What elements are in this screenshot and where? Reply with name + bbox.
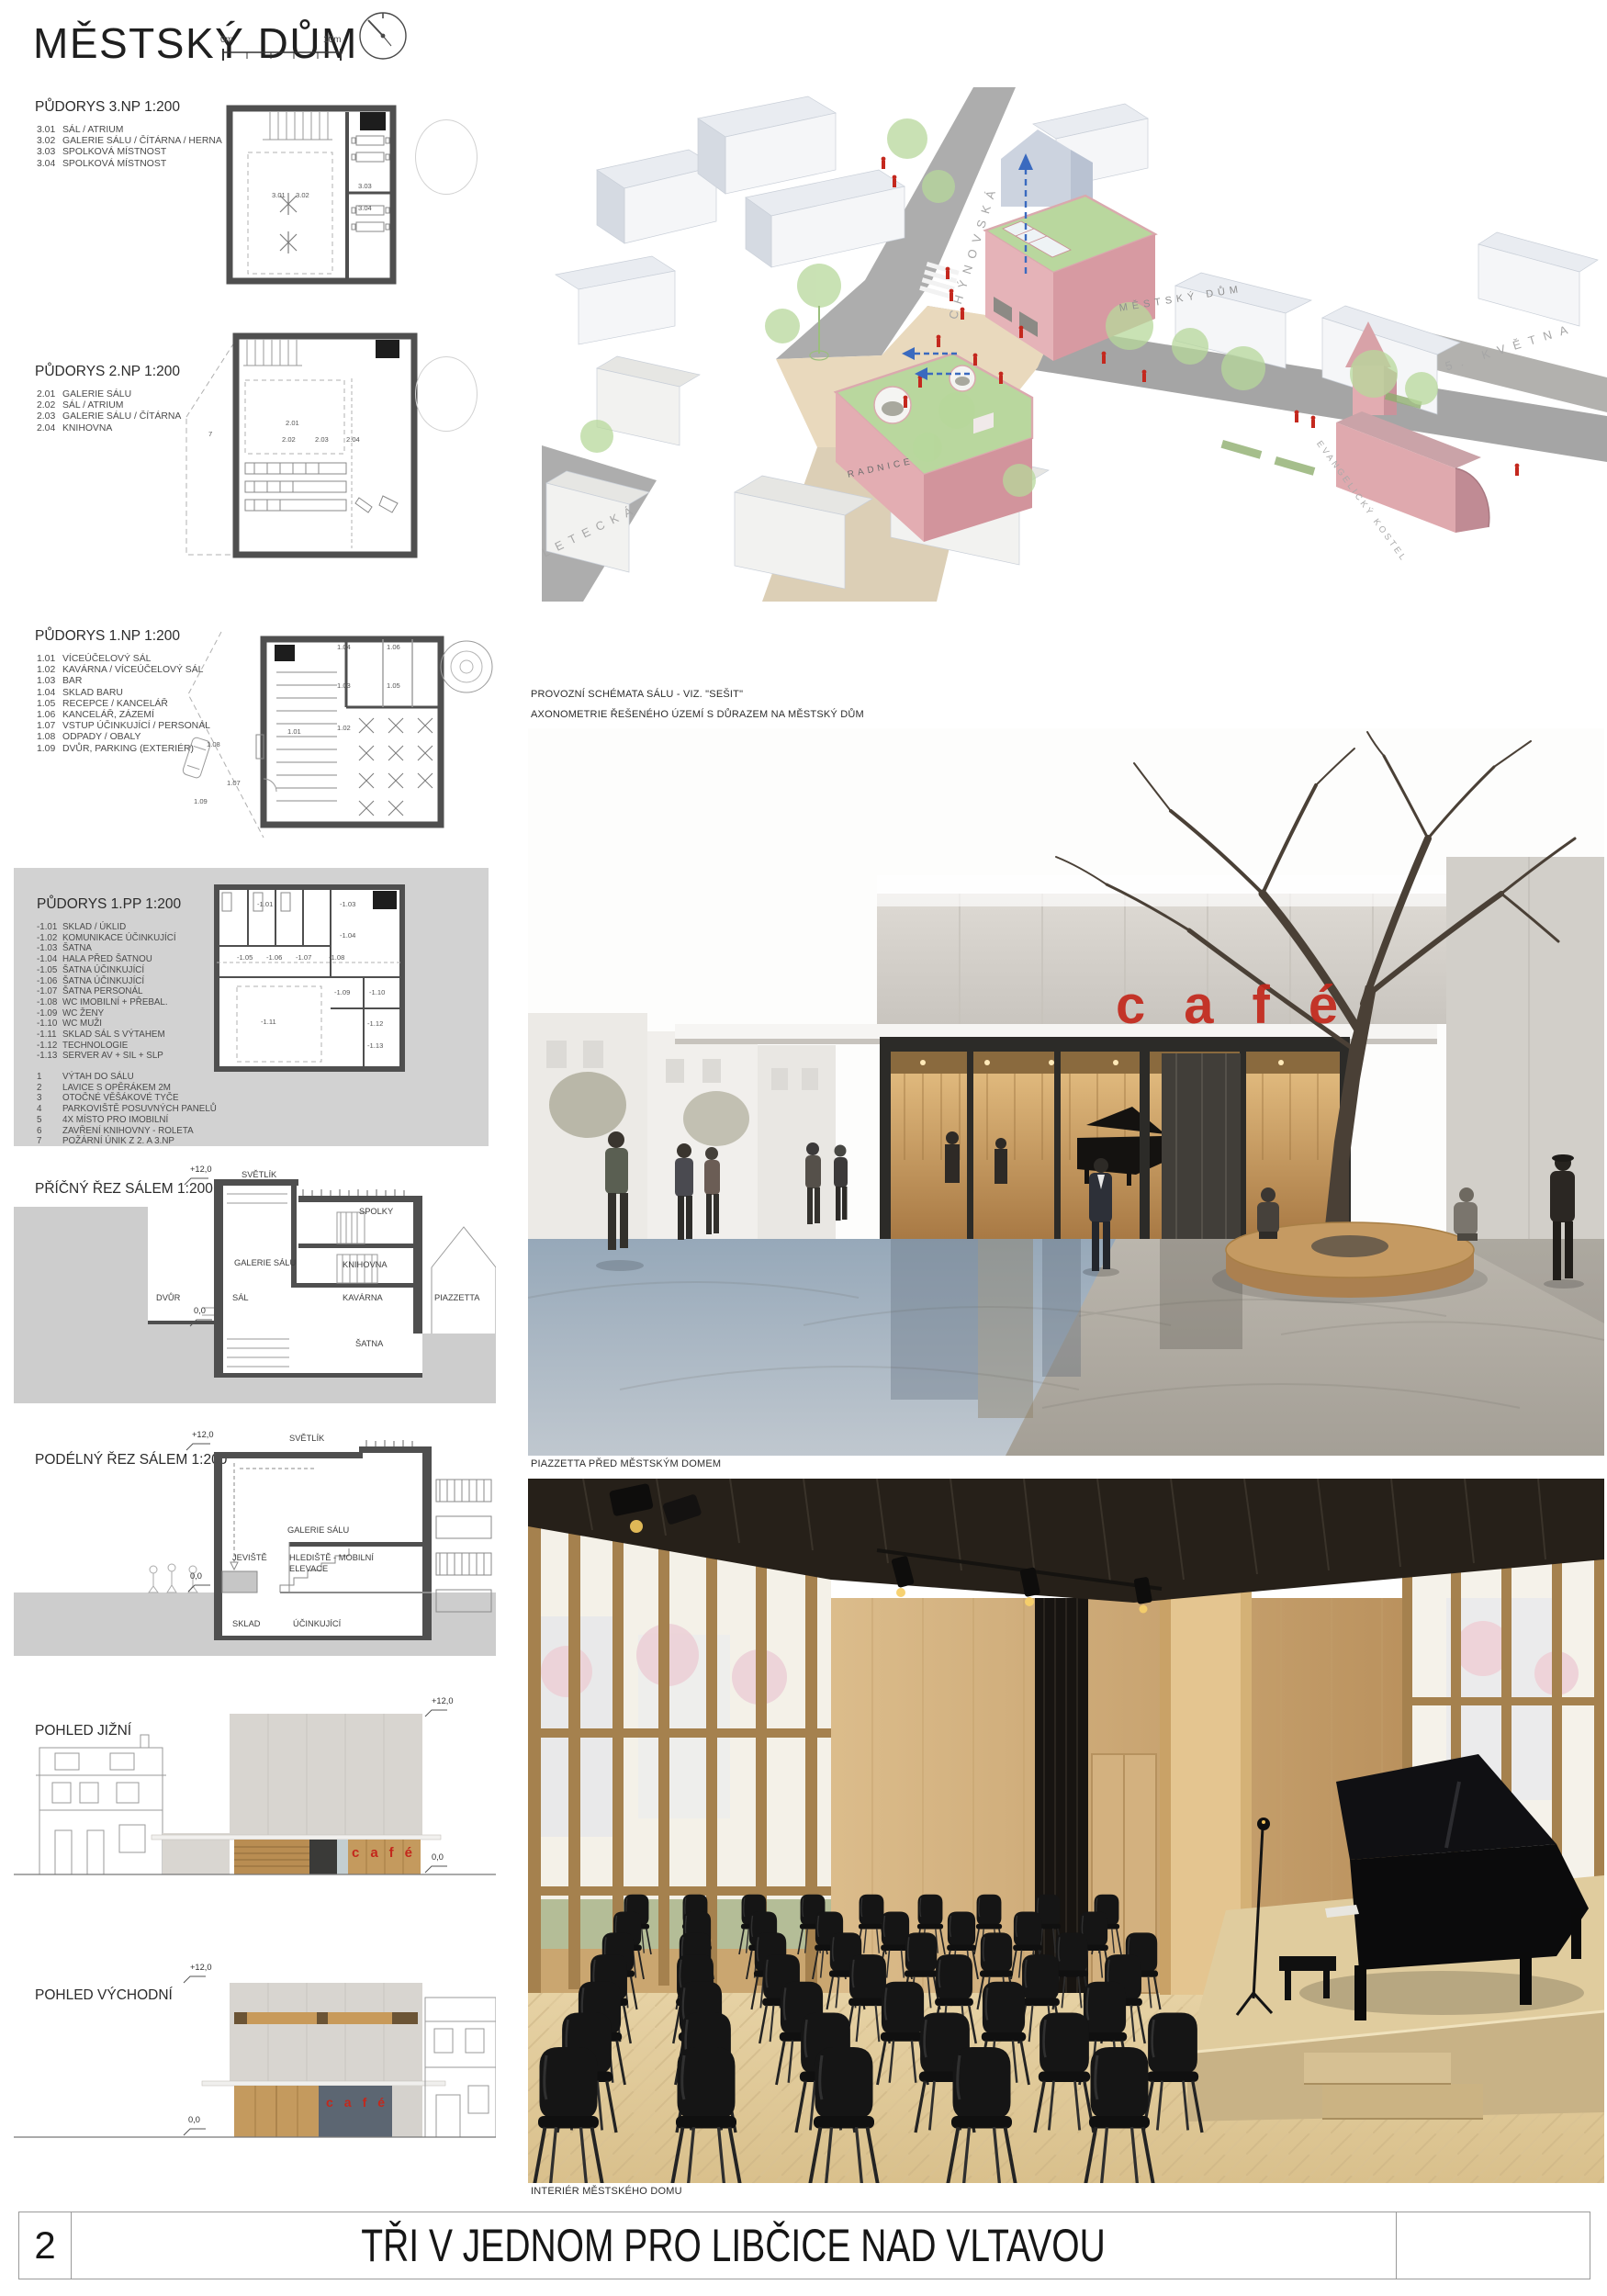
site-circle-outline [415, 119, 478, 195]
legend-item: 2.03GALERIE SÁLU / ČÍTÁRNA [37, 411, 181, 422]
cafe-sign: café [352, 1845, 423, 1861]
legend-item-number: 3.03 [37, 147, 62, 158]
legend-item: -1.10WC MUŽI [37, 1019, 176, 1030]
legend-item-label: VÍCEÚČELOVÝ SÁL [62, 654, 151, 665]
legend-item-label: POŽÁRNÍ ÚNIK Z 2. A 3.NP [62, 1136, 174, 1147]
render-piazzetta-image [528, 728, 1604, 1456]
plan-1pp-legend: -1.01SKLAD / ÚKLID-1.02KOMUNIKACE ÚČINKU… [37, 922, 176, 1062]
legend-item: -1.01SKLAD / ÚKLID [37, 922, 176, 933]
legend-item-number: -1.12 [37, 1041, 62, 1052]
legend-item: -1.06ŠATNA ÚČINKUJÍCÍ [37, 976, 176, 987]
legend-item-number: 4 [37, 1104, 62, 1115]
plan-1pp-title: PŮDORYS 1.PP 1:200 [37, 896, 181, 913]
section-long: +12,0 SVĚTLÍK GALERIE SÁLU JEVIŠTĚ HLEDI… [14, 1424, 496, 1656]
legend-item: -1.09WC ŽENY [37, 1008, 176, 1019]
legend-item: 1VÝTAH DO SÁLU [37, 1072, 217, 1083]
room-number: 2.01 [286, 419, 299, 427]
room-number: -1.10 [369, 988, 385, 996]
plan-1np-title: PŮDORYS 1.NP 1:200 [35, 628, 180, 645]
legend-item-label: HALA PŘED ŠATNOU [62, 954, 152, 965]
plan-3np-title: PŮDORYS 3.NP 1:200 [35, 99, 180, 116]
level-mark: +12,0 [190, 1165, 212, 1174]
elevation-east: +12,0 0,0 café [14, 1957, 496, 2143]
section-room-label: PIAZZETTA [434, 1293, 479, 1302]
section-room-label: SVĚTLÍK [242, 1170, 276, 1179]
room-number: 3.02 [296, 191, 309, 199]
level-mark: 0,0 [188, 2115, 200, 2124]
legend-item-label: WC IMOBILNÍ + PŘEBAL. [62, 997, 168, 1008]
room-number: 1.05 [387, 681, 400, 690]
scale-end-label: 10m [323, 35, 341, 45]
room-number: -1.05 [237, 953, 253, 962]
site-circle-outline [415, 356, 478, 432]
legend-item: -1.02KOMUNIKACE ÚČINKUJÍCÍ [37, 933, 176, 944]
legend-item-label: ŠATNA PERSONÁL [62, 986, 142, 997]
room-number: -1.13 [367, 1041, 383, 1050]
room-number: 2.02 [282, 435, 296, 444]
section-room-label: SKLAD [232, 1619, 261, 1628]
level-mark: +12,0 [190, 1963, 212, 1972]
floor-plan-3np: 3.01 3.02 3.03 3.04 [222, 103, 406, 287]
room-number: 3.03 [358, 182, 372, 190]
legend-item-number: 1 [37, 1072, 62, 1083]
legend-item-number: 3.04 [37, 159, 62, 170]
render-interior [528, 1479, 1604, 2183]
legend-item: 4PARKOVIŠTĚ POSUVNÝCH PANELŮ [37, 1104, 217, 1115]
legend-item-label: DVŮR, PARKING (EXTERIÉR) [62, 744, 194, 755]
footer-empty-cell [1397, 2212, 1590, 2279]
level-mark: 0,0 [194, 1306, 206, 1315]
legend-item-number: -1.08 [37, 997, 62, 1008]
legend-item-label: ZAVŘENÍ KNIHOVNY - ROLETA [62, 1126, 194, 1137]
legend-item-number: 2.01 [37, 389, 62, 400]
legend-item-label: PARKOVIŠTĚ POSUVNÝCH PANELŮ [62, 1104, 217, 1115]
legend-item: 3.01SÁL / ATRIUM [37, 125, 222, 136]
project-title-cell: TŘI V JEDNOM PRO LIBČICE NAD VLTAVOU [72, 2212, 1397, 2279]
room-number: 1.01 [287, 727, 301, 736]
legend-item-label: SPOLKOVÁ MÍSTNOST [62, 147, 166, 158]
legend-item-label: BAR [62, 676, 82, 687]
cafe-sign-large: café [1116, 974, 1377, 1036]
legend-item: -1.11SKLAD SÁL S VÝTAHEM [37, 1030, 176, 1041]
legend-item: 3.04SPOLKOVÁ MÍSTNOST [37, 159, 222, 170]
room-number: 7 [208, 430, 212, 438]
presentation-board: MĚSTSKÝ DŮM 0m 10m PŮDORYS 3.NP 1:200 3.… [0, 0, 1607, 2296]
legend-item-number: -1.10 [37, 1019, 62, 1030]
legend-item: 6ZAVŘENÍ KNIHOVNY - ROLETA [37, 1126, 217, 1137]
room-number: -1.03 [340, 900, 355, 908]
plan-3np-legend: 3.01SÁL / ATRIUM3.02GALERIE SÁLU / ČÍTÁR… [37, 125, 222, 170]
room-number: -1.11 [261, 1018, 276, 1026]
legend-item-number: 3.01 [37, 125, 62, 136]
caption-axonometrie: AXONOMETRIE ŘEŠENÉHO ÚZEMÍ S DŮRAZEM NA … [531, 709, 864, 720]
room-number: -1.07 [296, 953, 311, 962]
legend-item-number: 1.02 [37, 665, 62, 676]
level-mark: +12,0 [432, 1696, 454, 1705]
legend-item-number: 2.03 [37, 411, 62, 422]
room-number: 1.06 [387, 643, 400, 651]
legend-item-number: -1.09 [37, 1008, 62, 1019]
room-number: 1.04 [337, 643, 351, 651]
floor-plan-1np-drawing [179, 625, 496, 843]
room-number: 1.08 [207, 740, 220, 748]
legend-item-label: ŠATNA ÚČINKUJÍCÍ [62, 965, 144, 976]
section-room-label: DVŮR [156, 1293, 180, 1302]
level-mark: 0,0 [190, 1571, 202, 1581]
scale-start-label: 0m [220, 35, 233, 45]
legend-item-number: 1.04 [37, 688, 62, 699]
legend-item: -1.03ŠATNA [37, 943, 176, 954]
legend-item-number: 3.02 [37, 136, 62, 147]
legend-item-label: KANCELÁŘ, ZÁZEMÍ [62, 710, 154, 721]
legend-item: 3.02GALERIE SÁLU / ČÍTÁRNA / HERNA [37, 136, 222, 147]
legend-item: -1.05ŠATNA ÚČINKUJÍCÍ [37, 965, 176, 976]
legend-item-label: WC ŽENY [62, 1008, 104, 1019]
legend-item-label: VÝTAH DO SÁLU [62, 1072, 134, 1083]
floor-plan-2np-drawing [179, 323, 427, 569]
legend-item-label: SPOLKOVÁ MÍSTNOST [62, 159, 166, 170]
legend-item-label: LAVICE S OPĚRÁKEM 2M [62, 1083, 171, 1094]
section-room-label: ÚČINKUJÍCÍ [293, 1619, 341, 1628]
scale-bar [220, 48, 345, 62]
legend-item-label: SÁL / ATRIUM [62, 125, 123, 136]
level-mark: +12,0 [192, 1430, 214, 1439]
section-room-label: KAVÁRNA [343, 1293, 383, 1302]
legend-item-number: 1.05 [37, 699, 62, 710]
plan-2np-title: PŮDORYS 2.NP 1:200 [35, 364, 180, 380]
legend-item-label: RECEPCE / KANCELÁŘ [62, 699, 168, 710]
legend-item-label: ŠATNA [62, 943, 92, 954]
legend-item: -1.12TECHNOLOGIE [37, 1041, 176, 1052]
legend-item-label: OTOČNÉ VĚŠÁKOVÉ TYČE [62, 1093, 179, 1104]
project-title: TŘI V JEDNOM PRO LIBČICE NAD VLTAVOU [362, 2219, 1106, 2272]
room-number: -1.08 [329, 953, 344, 962]
section-cross: +12,0 SVĚTLÍK SPOLKY GALERIE SÁLU KNIHOV… [14, 1159, 496, 1405]
render-interior-image [528, 1479, 1604, 2183]
legend-item-number: -1.01 [37, 922, 62, 933]
legend-item-number: 1.01 [37, 654, 62, 665]
plan-2np-legend: 2.01GALERIE SÁLU2.02SÁL / ATRIUM2.03GALE… [37, 389, 181, 434]
north-compass-icon [356, 9, 410, 62]
room-number: -1.04 [340, 931, 355, 940]
caption-schemata: PROVOZNÍ SCHÉMATA SÁLU - VIZ. "SEŠIT" [531, 689, 743, 700]
legend-item-number: 2 [37, 1083, 62, 1094]
elevation-south: +12,0 0,0 café [14, 1691, 496, 1885]
legend-item-label: GALERIE SÁLU [62, 389, 131, 400]
legend-item-number: -1.11 [37, 1030, 62, 1041]
room-number: 2.03 [315, 435, 329, 444]
floor-plan-2np: 7 2.01 2.02 2.03 2.04 [179, 323, 427, 569]
legend-item-number: 3 [37, 1093, 62, 1104]
legend-item-label: TECHNOLOGIE [62, 1041, 128, 1052]
legend-item: 54X MÍSTO PRO IMOBILNÍ [37, 1115, 217, 1126]
basement-panel: PŮDORYS 1.PP 1:200 -1.01SKLAD / ÚKLID-1.… [14, 868, 489, 1146]
legend-item-label: KNIHOVNA [62, 423, 112, 434]
room-number: -1.06 [266, 953, 282, 962]
legend-item: 3OTOČNÉ VĚŠÁKOVÉ TYČE [37, 1093, 217, 1104]
legend-item-label: SKLAD SÁL S VÝTAHEM [62, 1030, 165, 1041]
legend-item: 3.03SPOLKOVÁ MÍSTNOST [37, 147, 222, 158]
legend-item: 2LAVICE S OPĚRÁKEM 2M [37, 1083, 217, 1094]
room-number: 2.04 [346, 435, 360, 444]
legend-item: -1.13SERVER AV + SIL + SLP [37, 1051, 176, 1062]
floor-plan-3np-drawing [222, 103, 406, 287]
legend-item-label: SKLAD BARU [62, 688, 123, 699]
render-piazzetta: café [528, 728, 1604, 1456]
legend-item-label: GALERIE SÁLU / ČÍTÁRNA / HERNA [62, 136, 222, 147]
legend-item-label: WC MUŽI [62, 1019, 102, 1030]
elevation-south-drawing [14, 1691, 496, 1885]
floor-plan-1pp: -1.01 -1.03 -1.04 -1.05 -1.06 -1.07 -1.0… [209, 880, 411, 1077]
legend-item-number: -1.05 [37, 965, 62, 976]
room-number: -1.09 [334, 988, 350, 996]
panel-number: 2 [19, 2212, 72, 2279]
legend-item-number: 1.09 [37, 744, 62, 755]
legend-item-number: 1.07 [37, 721, 62, 732]
legend-item-number: -1.13 [37, 1051, 62, 1062]
legend-item-number: 1.08 [37, 732, 62, 743]
legend-item-number: 1.03 [37, 676, 62, 687]
legend-item-number: -1.04 [37, 954, 62, 965]
elevation-east-drawing [14, 1957, 496, 2143]
section-room-label: ŠATNA [355, 1339, 383, 1348]
legend-item-label: ODPADY / OBALY [62, 732, 140, 743]
section-room-label: GALERIE SÁLU [287, 1525, 349, 1535]
room-number: -1.01 [257, 900, 273, 908]
legend-item-number: 2.02 [37, 400, 62, 411]
legend-item-label: SERVER AV + SIL + SLP [62, 1051, 163, 1062]
legend-item: -1.08WC IMOBILNÍ + PŘEBAL. [37, 997, 176, 1008]
section-room-label: KNIHOVNA [343, 1260, 388, 1269]
legend-item: 2.01GALERIE SÁLU [37, 389, 181, 400]
legend-item-label: GALERIE SÁLU / ČÍTÁRNA [62, 411, 181, 422]
section-room-label: GALERIE SÁLU [234, 1258, 296, 1267]
legend-item-number: 5 [37, 1115, 62, 1126]
room-number: -1.12 [367, 1019, 383, 1028]
legend-item-label: ŠATNA ÚČINKUJÍCÍ [62, 976, 144, 987]
section-room-label: HLEDIŠTĚ - MOBILNÍ [289, 1553, 374, 1562]
section-room-label: JEVIŠTĚ [232, 1553, 267, 1562]
legend-item: 7POŽÁRNÍ ÚNIK Z 2. A 3.NP [37, 1136, 217, 1147]
level-mark: 0,0 [432, 1852, 444, 1862]
section-room-label: ELEVACE [289, 1564, 328, 1573]
legend-item: -1.07ŠATNA PERSONÁL [37, 986, 176, 997]
legend-item-number: 7 [37, 1136, 62, 1147]
room-number: 1.03 [337, 681, 351, 690]
legend-item-label: SÁL / ATRIUM [62, 400, 123, 411]
floor-plan-1np: 1.04 1.06 1.03 1.05 1.02 1.01 1.08 1.07 … [179, 625, 496, 843]
legend-item-number: -1.03 [37, 943, 62, 954]
footer-bar: 2 TŘI V JEDNOM PRO LIBČICE NAD VLTAVOU [18, 2212, 1590, 2279]
section-room-label: SVĚTLÍK [289, 1434, 324, 1443]
room-number: 1.09 [194, 797, 208, 805]
section-room-label: SÁL [232, 1293, 249, 1302]
section-cross-drawing [14, 1159, 496, 1405]
caption-piazzetta: PIAZZETTA PŘED MĚSTSKÝM DOMEM [531, 1458, 721, 1469]
legend-item-number: 6 [37, 1126, 62, 1137]
room-number: 3.01 [272, 191, 286, 199]
legend-item-number: -1.07 [37, 986, 62, 997]
legend-item-label: KOMUNIKACE ÚČINKUJÍCÍ [62, 933, 176, 944]
legend-item-number: 1.06 [37, 710, 62, 721]
room-number: 1.02 [337, 724, 351, 732]
legend-item: 2.02SÁL / ATRIUM [37, 400, 181, 411]
legend-item-number: -1.06 [37, 976, 62, 987]
site-axonometry [542, 51, 1607, 602]
legend-item-number: 2.04 [37, 423, 62, 434]
plan-1pp-notes: 1VÝTAH DO SÁLU2LAVICE S OPĚRÁKEM 2M3OTOČ… [37, 1072, 217, 1147]
legend-item-label: SKLAD / ÚKLID [62, 922, 126, 933]
legend-item: -1.04HALA PŘED ŠATNOU [37, 954, 176, 965]
caption-interior: INTERIÉR MĚSTSKÉHO DOMU [531, 2186, 682, 2197]
legend-item-label: 4X MÍSTO PRO IMOBILNÍ [62, 1115, 168, 1126]
room-number: 1.07 [227, 779, 241, 787]
section-room-label: SPOLKY [359, 1207, 393, 1216]
legend-item-number: -1.02 [37, 933, 62, 944]
room-number: 3.04 [358, 204, 372, 212]
legend-item: 2.04KNIHOVNA [37, 423, 181, 434]
cafe-sign: café [326, 2095, 396, 2110]
